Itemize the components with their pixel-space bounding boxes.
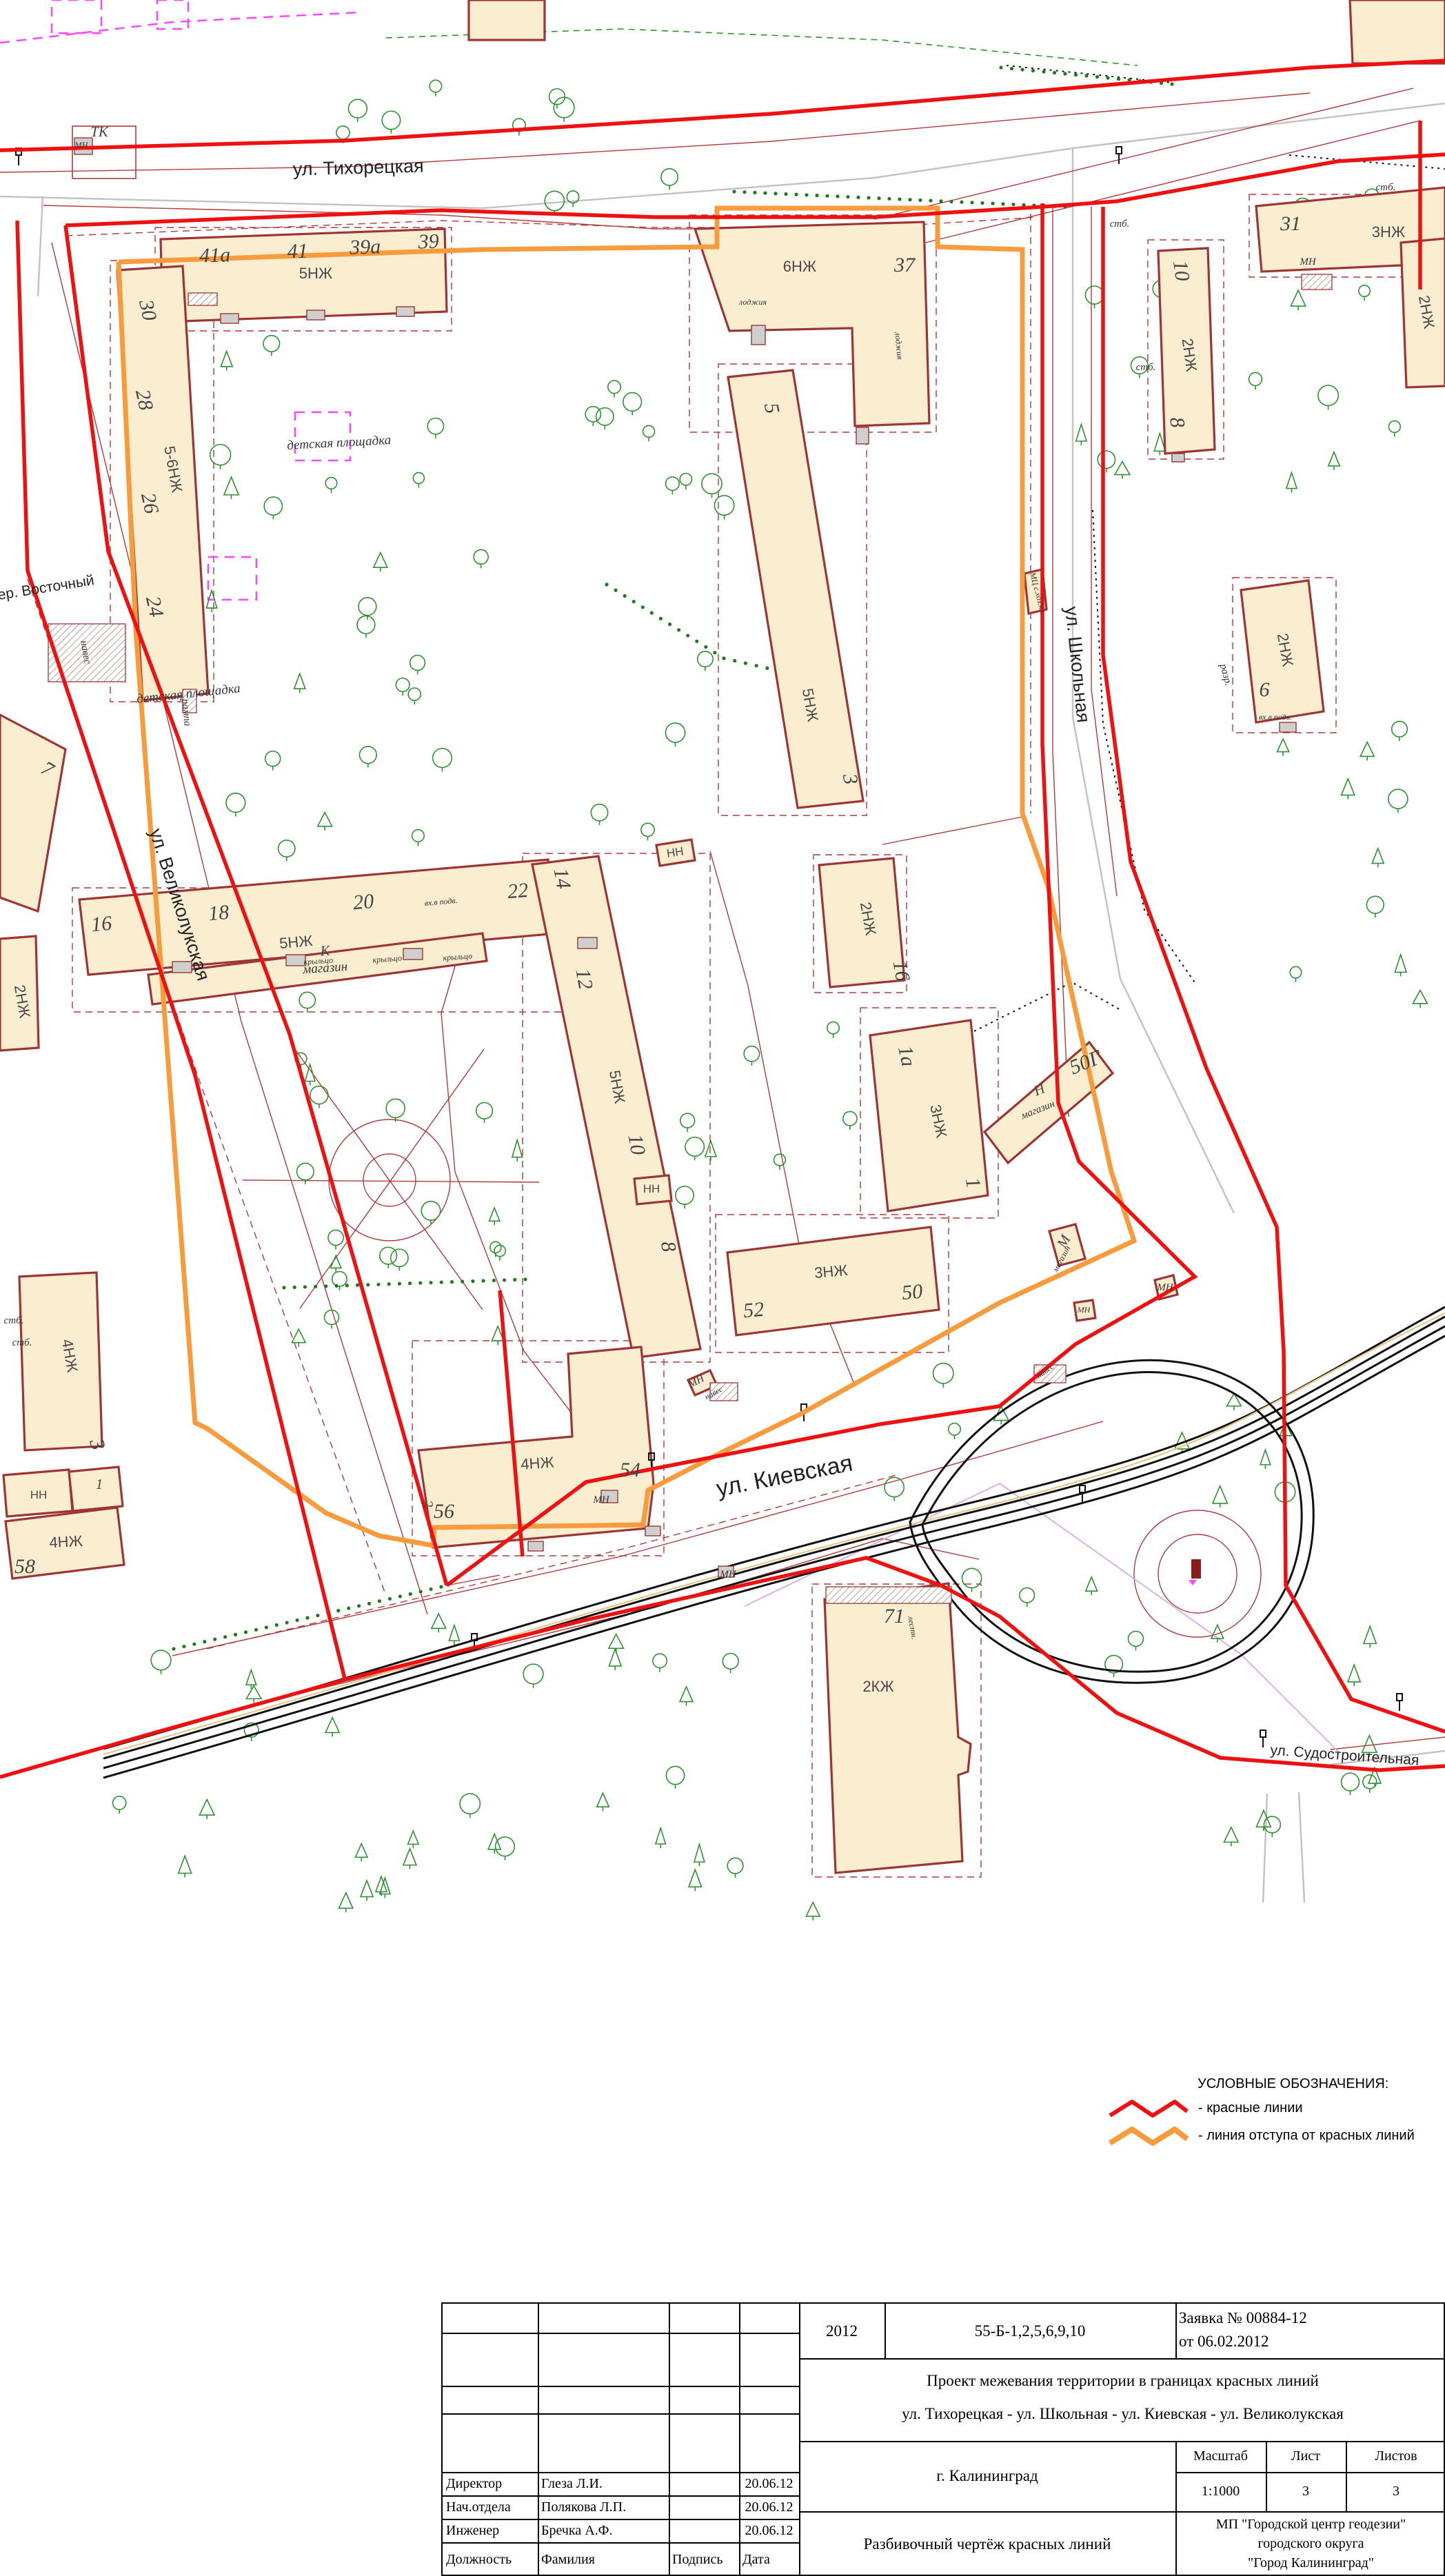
map-label: 41: [287, 239, 308, 263]
hedge-dot: [695, 640, 698, 643]
tree-icon: [263, 336, 280, 352]
hedge-dot: [282, 1286, 285, 1289]
canopy-hatch: [826, 1587, 951, 1603]
hedge-dot: [334, 1284, 338, 1288]
hedge-dot: [398, 1594, 402, 1598]
building: [1350, 0, 1445, 63]
tree-icon: [1098, 451, 1115, 468]
map-label: 71: [884, 1605, 905, 1627]
red-line: [0, 61, 1445, 150]
map-label: 12: [572, 967, 598, 991]
hedge-dot: [980, 201, 984, 205]
map-label: 3НЖ: [1372, 223, 1406, 241]
hedge-dot: [763, 191, 767, 194]
hedge-dot: [949, 200, 953, 203]
sheet-label: Лист: [1266, 2441, 1346, 2472]
tree-icon: [585, 407, 600, 422]
hedge-dot: [999, 65, 1002, 69]
hedge-dot: [1170, 82, 1173, 85]
project-line1: Проект межевания территории в границах к…: [799, 2367, 1445, 2395]
map-label: 6НЖ: [783, 258, 817, 275]
drawing-page: ул. Тихорецкаяпер. Восточныйул. Великолу…: [0, 0, 1445, 2576]
hedge-dot: [429, 1588, 432, 1591]
tree-icon: [336, 126, 350, 139]
hedge-dot: [1063, 72, 1067, 75]
monument-icon: [1191, 1559, 1201, 1579]
hedge-dot: [742, 190, 746, 194]
map-label: 14: [549, 866, 576, 891]
tree-icon: [210, 445, 231, 465]
building: [0, 715, 65, 911]
conifer-tree-icon: [361, 1880, 373, 1897]
hedge-dot: [285, 1621, 289, 1624]
tree-icon: [623, 393, 642, 412]
sheets-label: Листов: [1346, 2441, 1445, 2472]
footer-date: Дата: [739, 2542, 799, 2576]
tree-icon: [151, 1650, 171, 1670]
city-cell: г. Калининград: [799, 2441, 1175, 2511]
conifer-tree-icon: [246, 1670, 256, 1685]
tree-icon: [358, 598, 376, 616]
hedge-dot: [677, 628, 680, 631]
tree-icon: [676, 1186, 694, 1204]
tree-icon: [427, 418, 443, 434]
road-marking: [103, 1313, 1445, 1754]
tree-icon: [698, 651, 713, 667]
map-label: рампа: [179, 698, 192, 727]
tree-icon: [1249, 373, 1262, 386]
tree-icon: [310, 1086, 328, 1104]
conifer-tree-icon: [680, 1687, 693, 1702]
hedge-dot: [713, 651, 716, 654]
footer-name: Фамилия: [538, 2542, 669, 2576]
map-label: 4НЖ: [49, 1532, 83, 1552]
map-label: вх.в подв.: [1259, 712, 1292, 722]
year-cell: 2012: [799, 2304, 885, 2358]
map-label: НН: [666, 844, 685, 860]
map-label: ТК: [90, 123, 109, 140]
hedge-dot: [378, 1599, 381, 1603]
legend-title: УСЛОВНЫЕ ОБОЗНАЧЕНИЯ:: [1198, 2076, 1445, 2092]
map-label: 20: [352, 890, 375, 914]
hedge-dot: [265, 1625, 268, 1629]
tree-icon: [430, 80, 441, 92]
conifer-tree-icon: [1291, 290, 1305, 306]
magenta-line: [0, 12, 358, 43]
conifer-tree-icon: [512, 1140, 523, 1157]
tree-icon: [666, 477, 680, 491]
map-label: 54: [620, 1459, 640, 1481]
legend: УСЛОВНЫЕ ОБОЗНАЧЕНИЯ: - красные линии - …: [1107, 2076, 1445, 2193]
hedge-dot: [805, 193, 808, 196]
sig-role-3: Инженер: [443, 2519, 538, 2542]
conifer-tree-icon: [1328, 452, 1340, 466]
sheets-value: 3: [1346, 2472, 1445, 2511]
hedge-dot: [523, 1277, 527, 1281]
hedge-dot: [877, 196, 880, 200]
map-label: 1: [96, 1476, 103, 1492]
tree-icon: [1388, 789, 1408, 809]
building: [532, 856, 700, 1358]
tree-icon: [460, 1794, 480, 1814]
hedge-dot: [419, 1590, 423, 1593]
hedge-dot: [704, 645, 707, 649]
conifer-tree-icon: [656, 1828, 665, 1844]
tree-icon: [328, 1230, 343, 1245]
conifer-tree-icon: [179, 1856, 192, 1873]
hedge-dot: [409, 1592, 412, 1596]
tree-icon: [299, 992, 315, 1008]
org-line1: МП "Городской центр геодезии": [1175, 2515, 1445, 2534]
hedge-dot: [1031, 69, 1035, 72]
conifer-tree-icon: [1360, 742, 1374, 757]
conifer-tree-icon: [1277, 739, 1289, 752]
tree-icon: [297, 1163, 314, 1180]
hedge-dot: [960, 201, 963, 204]
conifer-tree-icon: [432, 1614, 446, 1628]
tree-icon: [264, 497, 282, 515]
sig-name-3: Бречка А.Ф.: [538, 2519, 669, 2542]
conifer-tree-icon: [1224, 1827, 1238, 1843]
footer-role: Должность: [443, 2542, 538, 2576]
tram-rail: [103, 1336, 1445, 1778]
hedge-dot: [650, 611, 654, 615]
conifer-tree-icon: [806, 1903, 820, 1916]
hedge-dot: [1074, 73, 1078, 77]
conifer-tree-icon: [488, 1834, 501, 1849]
code-cell: 55-Б-1,2,5,6,9,10: [885, 2304, 1175, 2358]
hedge-dot: [733, 659, 736, 662]
map-label: 39а: [349, 235, 381, 259]
map-label: крыльцо: [443, 951, 472, 963]
map-label: 39: [417, 230, 439, 253]
request-line2: от 06.02.2012: [1175, 2330, 1445, 2353]
hedge-dot: [408, 1281, 412, 1285]
hedge-dot: [856, 196, 860, 199]
conifer-tree-icon: [294, 673, 305, 689]
hedge-dot: [1020, 68, 1024, 71]
hedge-dot: [668, 622, 671, 626]
hedge-dot: [1106, 76, 1109, 79]
hedge-dot: [755, 664, 758, 667]
tree-icon: [433, 749, 452, 768]
map-label: 37: [893, 254, 916, 276]
tree-icon: [382, 111, 401, 130]
hedge-dot: [939, 199, 942, 203]
hedge-dot: [450, 1280, 454, 1284]
map-label: МН: [1299, 256, 1316, 267]
tree-icon: [279, 840, 295, 857]
tree-icon: [774, 1154, 785, 1166]
hedge-dot: [641, 605, 645, 609]
map-label: крыльцо: [372, 953, 402, 965]
tree-icon: [661, 169, 678, 185]
map-label: 16: [889, 959, 915, 983]
hedge-dot: [623, 594, 627, 598]
tree-icon: [949, 1423, 961, 1436]
footer-sign: Подпись: [669, 2542, 739, 2576]
hedge-dot: [1053, 71, 1056, 74]
tree-icon: [360, 747, 377, 764]
hedge-dot: [192, 1642, 196, 1645]
hedge-dot: [867, 196, 870, 199]
sig-date-1: 20.06.12: [739, 2472, 799, 2495]
porch-box: [221, 314, 239, 323]
conifer-tree-icon: [1076, 424, 1087, 441]
tree-icon: [685, 1137, 705, 1157]
road-grey: [38, 196, 43, 296]
hedge-dot: [172, 1647, 175, 1650]
tree-icon: [643, 425, 655, 437]
porch-box: [307, 310, 325, 320]
conifer-tree-icon: [1395, 955, 1406, 973]
map-label: 22: [507, 879, 529, 903]
hedge-dot: [398, 1282, 401, 1286]
hedge-dot: [244, 1630, 247, 1634]
request-line1: Заявка № 00884-12: [1175, 2306, 1445, 2330]
tree-icon: [474, 549, 488, 564]
hedge-dot: [836, 194, 839, 198]
street-label-vostochny: пер. Восточный: [0, 572, 95, 605]
tree-icon: [325, 478, 337, 489]
hedge-dot: [213, 1638, 216, 1641]
building: [469, 0, 545, 40]
map-label: 52: [742, 1298, 765, 1322]
hedge-dot: [461, 1280, 464, 1284]
tree-icon: [933, 1363, 953, 1383]
tree-icon: [112, 1796, 125, 1809]
map-label: стб.: [12, 1337, 32, 1348]
tree-icon: [665, 723, 685, 742]
tree-icon: [396, 678, 410, 692]
map-label: разр.: [1217, 662, 1234, 687]
conifer-tree-icon: [1348, 1665, 1360, 1682]
sig-role-1: Директор: [443, 2472, 538, 2495]
tree-icon: [410, 656, 425, 671]
conifer-tree-icon: [694, 1844, 705, 1862]
hedge-dot: [605, 582, 608, 586]
kerb-line: [1053, 207, 1069, 1117]
map-label: 4НЖ: [520, 1453, 555, 1472]
kerb-line: [0, 93, 1310, 172]
tree-icon: [412, 830, 425, 842]
hedge-dot: [316, 1614, 319, 1617]
road-grey: [1299, 1792, 1304, 1903]
map-label: НН: [30, 1488, 48, 1501]
tree-icon: [476, 1103, 493, 1119]
city-plan-map: ул. Тихорецкаяпер. Восточныйул. Великолу…: [0, 0, 1445, 1937]
conifer-tree-icon: [1115, 462, 1130, 475]
red-line-icon: [1107, 2096, 1190, 2120]
sig-role-2: Нач.отдела: [443, 2495, 538, 2519]
tree-icon: [413, 473, 424, 484]
map-label: НН: [643, 1182, 660, 1195]
org-line2: городского округа: [1175, 2534, 1445, 2553]
scale-label: Масштаб: [1175, 2441, 1266, 2472]
conifer-tree-icon: [403, 1849, 416, 1865]
tree-icon: [1085, 286, 1103, 304]
map-label: 58: [14, 1555, 35, 1578]
tree-icon: [608, 381, 621, 394]
tree-icon: [1366, 896, 1384, 913]
magenta-dashed-rect: [157, 0, 188, 29]
conifer-tree-icon: [199, 1800, 214, 1815]
hedge-dot: [846, 195, 849, 199]
map-label: лоджия: [738, 297, 767, 307]
map-label: 18: [208, 901, 230, 925]
sig-name-1: Глеза Л.И.: [538, 2472, 669, 2495]
tree-icon: [1392, 721, 1408, 737]
conifer-tree-icon: [1260, 1450, 1271, 1465]
hedge-dot: [1117, 77, 1120, 81]
map-label: МН: [1156, 1282, 1173, 1293]
map-label: 5НЖ: [299, 265, 333, 282]
hedge-dot: [482, 1279, 485, 1282]
tree-icon: [523, 1664, 543, 1684]
tree-icon: [827, 1022, 839, 1033]
porch-box: [1280, 722, 1296, 732]
kerb-line: [882, 817, 1022, 844]
conifer-tree-icon: [374, 553, 387, 567]
tree-icon: [1129, 1631, 1144, 1646]
hedge-dot: [686, 633, 689, 637]
canopy-hatch: [1302, 274, 1332, 290]
hedge-dot: [388, 1597, 392, 1601]
map-label: 2КЖ: [862, 1678, 894, 1695]
conifer-tree-icon: [1211, 1625, 1224, 1639]
hedge-dot: [722, 656, 725, 660]
sheet-value: 3: [1266, 2472, 1346, 2511]
porch-box: [751, 325, 765, 345]
tree-icon: [591, 804, 607, 821]
tree-icon: [962, 1568, 982, 1588]
tree-icon: [641, 823, 654, 836]
tree-icon: [386, 1099, 405, 1117]
hedge-dot: [825, 194, 829, 198]
conifer-tree-icon: [609, 1649, 621, 1666]
hedge-dot: [887, 197, 891, 201]
map-label: 10: [1169, 259, 1194, 283]
conifer-tree-icon: [356, 1844, 367, 1858]
hedge-dot: [1001, 202, 1004, 205]
hedge-dot: [1010, 67, 1013, 70]
tree-icon: [714, 496, 734, 515]
hedge-dot: [376, 1283, 380, 1286]
tree-icon: [727, 1858, 743, 1874]
legend-item-setback-lines: - линия отступа от красных линий: [1198, 2128, 1415, 2144]
tree-icon: [380, 1247, 397, 1264]
hedge-dot: [918, 199, 922, 202]
sig-name-2: Полякова Л.П.: [538, 2495, 669, 2519]
street-label-kievskaya: ул. Киевская: [714, 1450, 855, 1502]
building: [728, 370, 863, 808]
map-label: МН: [592, 1494, 609, 1505]
map-label: стб.: [1376, 182, 1396, 193]
tram-rail: [103, 1326, 1445, 1768]
hedge-dot: [303, 1285, 307, 1288]
hedge-dot: [471, 1279, 474, 1283]
hedge-dot: [418, 1281, 422, 1285]
hedge-dot: [305, 1616, 309, 1619]
porch-box: [403, 949, 423, 960]
hedge-dot: [182, 1645, 185, 1648]
hedge-dot: [387, 1282, 391, 1286]
tram-rail: [103, 1307, 1445, 1749]
hedge-dot: [295, 1619, 299, 1622]
map-label: детская площадка: [287, 433, 392, 453]
tree-icon: [1318, 385, 1338, 405]
map-label: 6: [1260, 678, 1270, 701]
hedge-dot: [765, 667, 769, 670]
map-label: стб.: [4, 1315, 24, 1326]
street-label-shkolnaya: ул. Школьная: [1061, 605, 1094, 724]
hedge-dot: [345, 1284, 349, 1287]
tree-icon: [496, 1837, 515, 1856]
map-label: 3НЖ: [814, 1261, 849, 1281]
conifer-tree-icon: [1413, 991, 1427, 1004]
porch-box: [645, 1526, 660, 1536]
tree-icon: [408, 688, 421, 700]
porch-box: [578, 937, 597, 949]
hedge-dot: [991, 202, 994, 205]
porch-box: [528, 1541, 543, 1551]
tree-icon: [680, 1113, 695, 1128]
hedge-dot: [356, 1284, 359, 1287]
map-label: 31: [1280, 212, 1301, 235]
tree-icon: [885, 1477, 904, 1497]
hedge-dot: [503, 1278, 506, 1281]
tree-icon: [1290, 966, 1302, 978]
tree-icon: [722, 1653, 738, 1669]
conifer-tree-icon: [449, 1625, 459, 1641]
hedge-dot: [275, 1623, 279, 1627]
map-label: 16: [90, 912, 113, 936]
hedge-dot: [366, 1283, 370, 1286]
map-label: стб.: [1110, 219, 1130, 230]
tree-icon: [226, 793, 245, 813]
conifer-tree-icon: [489, 1208, 499, 1221]
tree-icon: [1359, 285, 1370, 296]
red-line: [1103, 207, 1445, 1732]
map-label: 5НЖ: [279, 932, 314, 952]
tree-icon: [348, 99, 367, 118]
hedge-dot: [784, 192, 787, 196]
kerb-line: [300, 1049, 484, 1308]
porch-box: [856, 427, 869, 444]
map-label: МН: [719, 1569, 736, 1580]
building: [19, 1272, 102, 1450]
tree-icon: [325, 1310, 339, 1325]
hedge-dot: [492, 1279, 496, 1282]
conifer-tree-icon: [221, 351, 232, 366]
sig-date-2: 20.06.12: [739, 2495, 799, 2519]
hedge-dot: [440, 1281, 443, 1284]
tree-icon: [1020, 1588, 1035, 1603]
conifer-tree-icon: [1372, 849, 1384, 864]
conifer-tree-icon: [224, 477, 239, 495]
tree-icon: [653, 1654, 667, 1667]
hedge-dot: [744, 662, 747, 665]
hedge-dot: [794, 193, 798, 196]
map-label: 41а: [199, 243, 231, 267]
hedge-dot: [429, 1281, 432, 1284]
hedge-dot: [367, 1602, 371, 1605]
tree-icon: [391, 1249, 408, 1266]
tree-icon: [596, 408, 614, 425]
hedge-dot: [1011, 203, 1015, 206]
map-label: 50: [901, 1280, 924, 1304]
org-line3: "Город Калининград": [1175, 2553, 1445, 2573]
